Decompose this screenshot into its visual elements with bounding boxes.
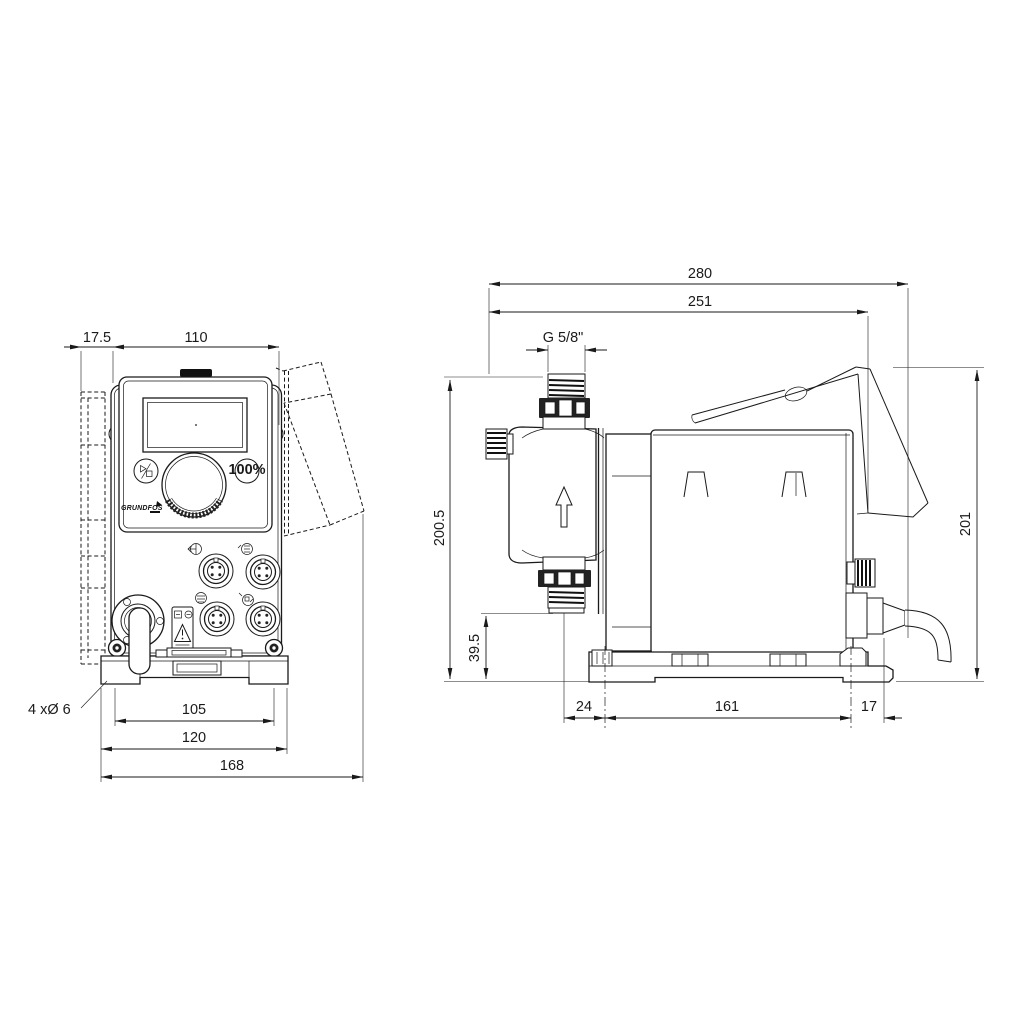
display-cursor-dot (195, 424, 197, 426)
m12-connector (246, 602, 280, 636)
dosing-head-body (509, 427, 596, 563)
pump-housing-side (606, 430, 853, 654)
note-mounting-holes: 4 xØ 6 (28, 702, 71, 718)
click-wheel (162, 453, 226, 517)
cable-gland-block (846, 593, 867, 638)
warning-label (172, 607, 193, 650)
dim-base-front: 24 (576, 699, 592, 715)
dim-total: 168 (220, 758, 244, 774)
m12-connector (199, 554, 233, 588)
dimensional-drawing: 100% GRUNDFOS (0, 0, 1024, 1024)
dim-height-top-valve: 200.5 (432, 510, 448, 546)
control-panel: 100% GRUNDFOS (119, 369, 272, 532)
hundred-percent-label: 100% (228, 462, 265, 478)
dim-base-rear: 17 (861, 699, 877, 715)
display (143, 398, 247, 452)
dim-height-bottom-valve: 39.5 (467, 634, 483, 662)
port-symbol-icon-3 (196, 593, 207, 604)
base-plate-side (589, 648, 893, 682)
m12-connector (200, 602, 234, 636)
dim-holes: 105 (182, 702, 206, 718)
dim-total-height: 201 (958, 512, 974, 536)
dim-plate: 120 (182, 730, 206, 746)
start-stop-button (134, 459, 158, 483)
dim-thread: G 5/8" (543, 330, 584, 346)
dim-total-depth: 280 (688, 266, 712, 282)
base-right-hook (840, 648, 866, 666)
priming-knob (486, 429, 513, 459)
top-clip (180, 369, 212, 377)
dim-base-length: 161 (715, 699, 739, 715)
m12-connector (246, 555, 280, 589)
dim-bracket-depth: 251 (688, 294, 712, 310)
dim-offset: 17.5 (83, 330, 111, 346)
dim-width: 110 (184, 330, 207, 346)
